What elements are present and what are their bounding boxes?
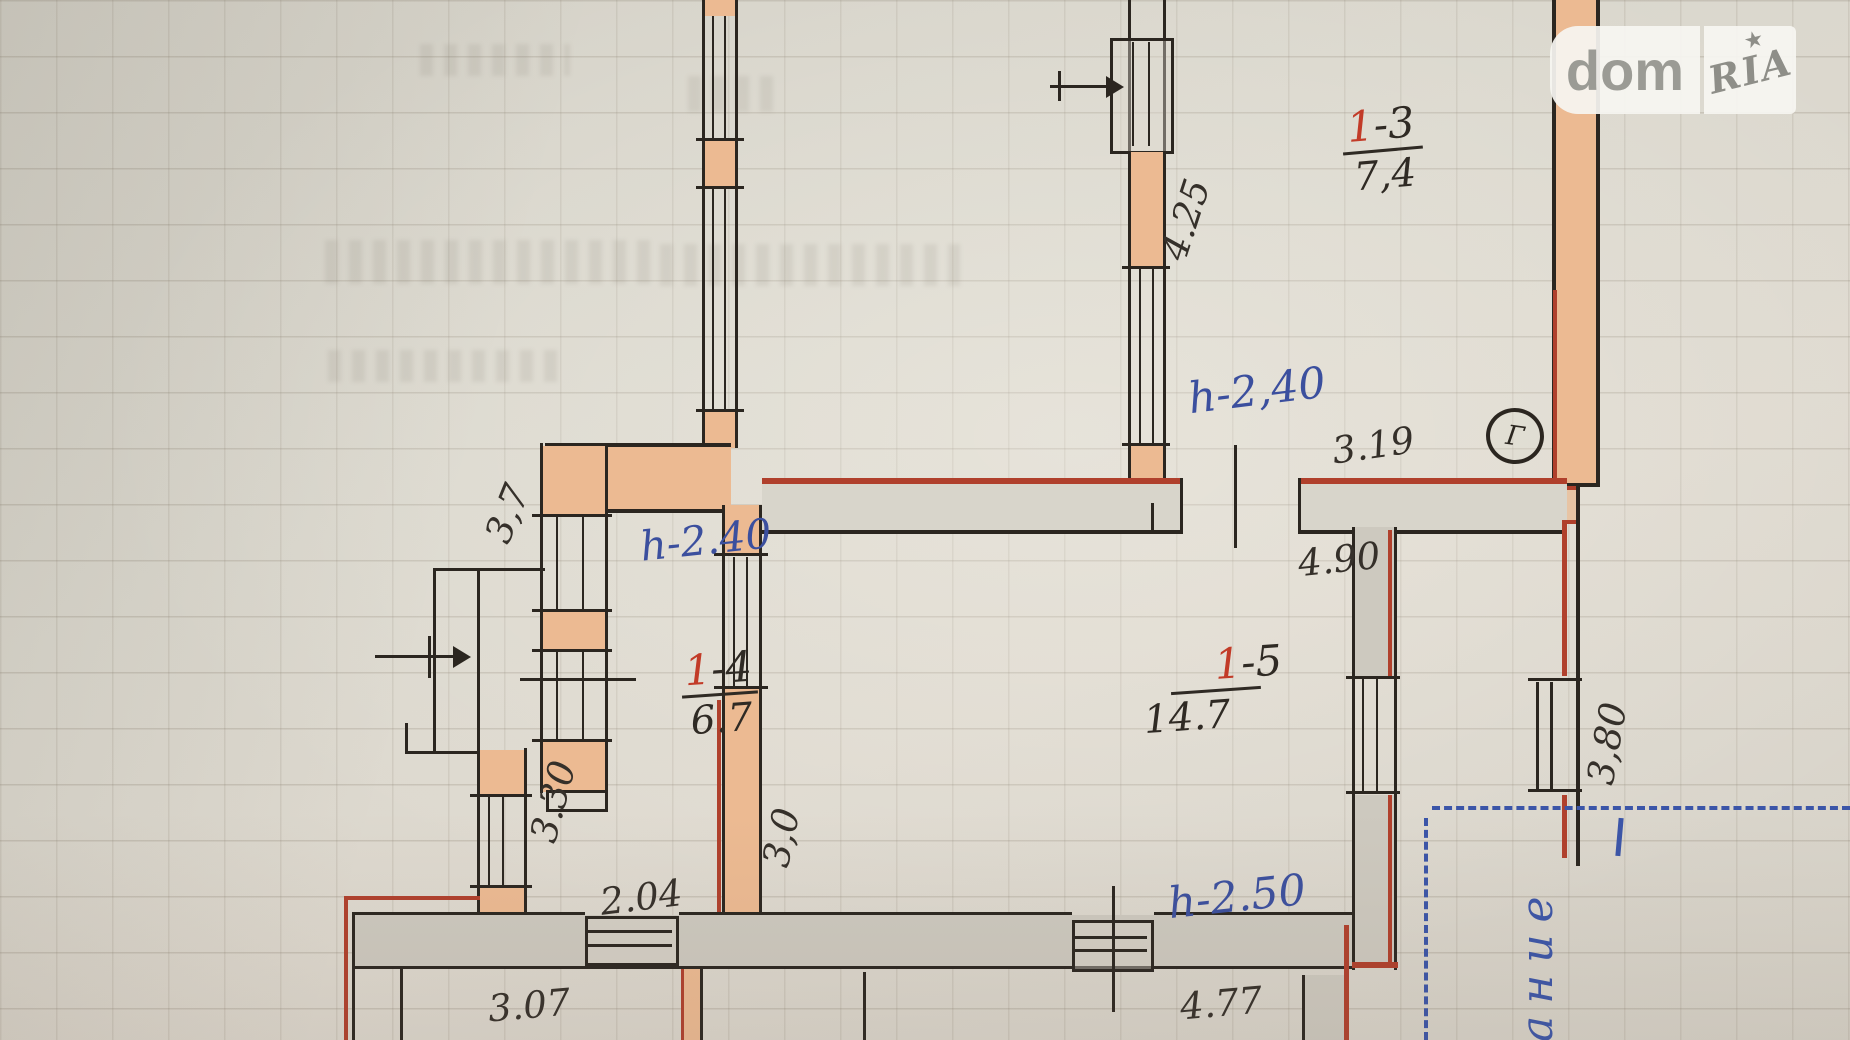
room-label-1-5: 1-5 14.7 bbox=[1137, 639, 1295, 743]
lower-divider-fill bbox=[684, 969, 700, 1040]
right-wall-red-cap bbox=[1350, 962, 1398, 968]
right-wall-red-line bbox=[1388, 795, 1392, 963]
dim-4-77: 4.77 bbox=[1178, 978, 1264, 1028]
watermark-dom-text: dom bbox=[1566, 38, 1684, 103]
outer-wall-red-line bbox=[1562, 520, 1567, 676]
entrance-arrow-head-icon bbox=[1106, 76, 1124, 98]
left-wall-window-line bbox=[582, 652, 584, 741]
room15-top-wall-left bbox=[762, 478, 1183, 534]
room15-top-wall-right bbox=[1298, 478, 1567, 534]
left-wall-tick bbox=[532, 514, 612, 517]
step-wall-tick bbox=[470, 794, 532, 797]
lower-left-room-wall bbox=[400, 969, 403, 1040]
wall-a-window-line bbox=[724, 16, 726, 140]
door-opening-tick-left bbox=[1180, 478, 1183, 532]
dim-3-7: 3,7 bbox=[476, 478, 538, 549]
door-opening-tick-right bbox=[1298, 478, 1301, 532]
blue-stub-mark bbox=[1615, 818, 1623, 856]
section-letter: Г bbox=[1504, 419, 1526, 452]
wall-b-tick bbox=[1122, 266, 1170, 269]
porch-top-line bbox=[433, 568, 545, 571]
bottom-left-black-line bbox=[352, 912, 355, 1040]
entrance-arrow-tail bbox=[1058, 71, 1061, 101]
entrance-arrow-tail bbox=[428, 636, 431, 678]
dim-3-80: 3,80 bbox=[1579, 699, 1636, 788]
watermark-ria-text: RIA bbox=[1704, 38, 1796, 102]
floor-plan-photo: ание 1-3 7,4 1-4 6.7 1-5 14.7 h-2,40 h-2… bbox=[0, 0, 1850, 1040]
blue-dashed-line-horizontal bbox=[1432, 806, 1850, 810]
right-wall-tick bbox=[1346, 676, 1400, 679]
wall-a-window-line bbox=[712, 16, 714, 140]
right-wall-edge-right bbox=[1394, 527, 1397, 970]
dim-3-0: 3,0 bbox=[754, 804, 808, 870]
bottom-wall-top-line bbox=[679, 912, 1072, 915]
dim-3-30: 3.30 bbox=[522, 756, 585, 847]
left-wall-pier bbox=[543, 446, 605, 516]
right-wall-tick bbox=[1346, 791, 1400, 794]
wall-a-pier bbox=[705, 0, 735, 16]
blue-vertical-word: ание bbox=[1512, 842, 1563, 1040]
bottom-wall-top-line bbox=[352, 912, 585, 915]
bottom-window-line bbox=[588, 930, 672, 933]
porch-step-line bbox=[405, 723, 408, 754]
bottom-window-line bbox=[588, 944, 672, 947]
lower-right-red-line bbox=[1344, 925, 1349, 1040]
watermark-dom-segment: dom bbox=[1550, 26, 1700, 114]
bottom-wall-bottom-line bbox=[352, 966, 1352, 969]
lower-right-wall-edge bbox=[1302, 975, 1305, 1040]
right-wall-window-line bbox=[1376, 678, 1378, 793]
room-area: 7,4 bbox=[1339, 151, 1432, 202]
erased-pencil-smudge bbox=[660, 244, 960, 286]
porch-inner-line bbox=[477, 568, 480, 750]
lower-divider-2 bbox=[863, 972, 866, 1040]
wall-small-tick bbox=[1151, 503, 1154, 531]
porch-bottom-line bbox=[405, 751, 480, 754]
room-number: 1-4 bbox=[673, 645, 764, 693]
watermark-ria-segment: ★ RIA bbox=[1704, 26, 1796, 114]
wall-b-pier bbox=[1131, 446, 1163, 478]
outer-wall-window-line bbox=[1550, 682, 1553, 790]
left-wall-tick bbox=[532, 739, 612, 742]
bottom-window-box bbox=[585, 916, 679, 966]
height-note-top: h-2,40 bbox=[1185, 358, 1328, 424]
erased-pencil-smudge bbox=[325, 240, 655, 284]
erased-pencil-smudge bbox=[420, 44, 570, 76]
step-wall-window-line bbox=[502, 797, 504, 887]
wall-a-edge-left bbox=[702, 0, 705, 448]
left-wall-pier bbox=[543, 612, 605, 652]
wall-c-red-line bbox=[1553, 290, 1557, 486]
wall-a-window-line bbox=[712, 188, 714, 412]
wall-a-pier bbox=[705, 140, 735, 188]
height-note-room-1-4: h-2.40 bbox=[638, 509, 774, 570]
bottom-left-red-corner-v bbox=[344, 896, 348, 1040]
right-wall-window-line bbox=[1362, 678, 1364, 793]
door-center-tick bbox=[1234, 445, 1237, 548]
wall-a-window-line bbox=[724, 188, 726, 412]
dimension-tick-line bbox=[520, 678, 636, 681]
step-wall-pier bbox=[480, 888, 524, 915]
room-number: 1-5 bbox=[1137, 639, 1292, 692]
room-number: 1-3 bbox=[1334, 100, 1427, 150]
step-wall-pier bbox=[480, 750, 524, 795]
left-wall-window-line bbox=[556, 652, 558, 741]
outer-wall-tick bbox=[1528, 789, 1582, 792]
porch-left-line bbox=[433, 568, 436, 754]
bottom-window-line bbox=[1075, 949, 1147, 952]
right-wall-red-line bbox=[1388, 530, 1392, 676]
left-wall-tick bbox=[532, 649, 612, 652]
wall-b-window-line bbox=[1132, 42, 1134, 146]
outer-wall-window-line bbox=[1536, 682, 1539, 790]
entrance-arrow-head-icon bbox=[453, 646, 471, 668]
wall-a-tick bbox=[696, 138, 744, 141]
wall-a-tick bbox=[696, 409, 744, 412]
step-wall-tick bbox=[470, 885, 532, 888]
room-label-1-3: 1-3 7,4 bbox=[1334, 100, 1432, 201]
dim-4-90: 4.90 bbox=[1296, 534, 1382, 585]
wall-b-window-line bbox=[1139, 268, 1141, 444]
lower-right-wall-fill bbox=[1305, 975, 1345, 1040]
erased-pencil-smudge bbox=[328, 350, 568, 382]
bottom-left-red-corner-h bbox=[344, 896, 480, 900]
dom-ria-watermark: dom ★ RIA bbox=[1550, 26, 1796, 114]
dim-3-07: 3.07 bbox=[486, 980, 572, 1030]
entrance-arrow-line bbox=[375, 655, 459, 658]
bottom-dimension-tick bbox=[1112, 886, 1115, 1012]
lower-divider-black-edge bbox=[700, 969, 703, 1040]
step-wall-window-line bbox=[488, 797, 490, 887]
room-label-1-4: 1-4 6.7 bbox=[673, 645, 767, 745]
dim-3-19: 3.19 bbox=[1329, 418, 1417, 472]
wall-b-window-line bbox=[1152, 268, 1154, 444]
room-area: 6.7 bbox=[676, 696, 767, 745]
lower-divider-red-edge bbox=[681, 969, 684, 1040]
left-wall-tick bbox=[532, 609, 612, 612]
section-circle-mark: Г bbox=[1482, 404, 1547, 468]
left-wall-window-line bbox=[582, 517, 584, 611]
bottom-window-line bbox=[1075, 936, 1147, 939]
left-wall-window-line bbox=[556, 517, 558, 611]
blue-dashed-line-vertical bbox=[1424, 818, 1428, 1040]
wall-a-edge-right bbox=[735, 0, 738, 448]
wall-b-window-line bbox=[1148, 42, 1150, 146]
outer-wall-tick bbox=[1528, 678, 1582, 681]
wall-a-tick bbox=[696, 186, 744, 189]
room-area: 14.7 bbox=[1140, 690, 1295, 743]
right-wall-edge-left bbox=[1352, 527, 1355, 970]
